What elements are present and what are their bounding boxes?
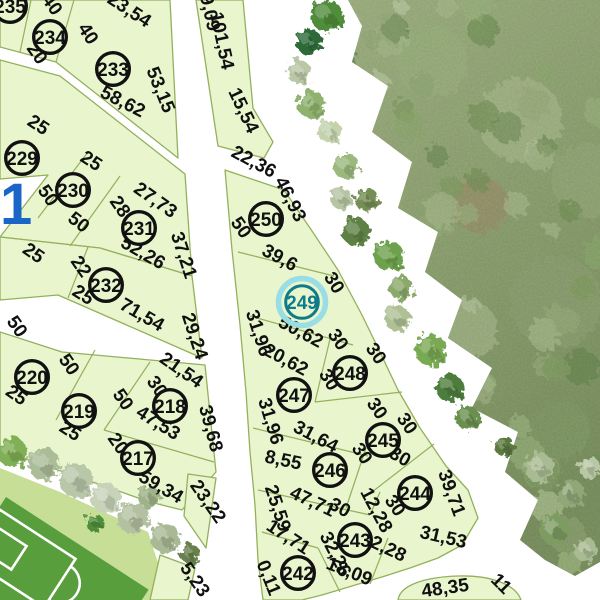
map-canvas: 404023,542053,1558,62252550502827,7337,2… — [0, 0, 600, 600]
parcel-number: 220 — [16, 368, 48, 389]
parcel-badge-219[interactable]: 219 — [63, 395, 96, 428]
tree-icon — [297, 90, 325, 118]
parcel-badge-247[interactable]: 247 — [278, 379, 311, 412]
tree-icon — [86, 514, 104, 532]
tree-icon — [28, 448, 60, 480]
tree-icon — [415, 334, 447, 366]
parcel-badge-244[interactable]: 244 — [399, 477, 432, 510]
parcel-badge-217[interactable]: 217 — [122, 442, 155, 475]
parcel-badge-249-selected[interactable]: 249 — [279, 279, 326, 326]
parcel-number: 250 — [250, 210, 282, 231]
tree-icon — [540, 515, 570, 545]
parcel-badge-220[interactable]: 220 — [16, 361, 49, 394]
parcel-badge-232[interactable]: 232 — [90, 269, 123, 302]
tree-icon — [579, 457, 600, 479]
tree-icon — [91, 483, 121, 513]
parcel-number: 233 — [97, 60, 129, 81]
tree-icon — [318, 120, 342, 144]
parcel-badge-234[interactable]: 234 — [34, 21, 67, 54]
parcel-badge-229[interactable]: 229 — [6, 142, 39, 175]
tree-icon — [436, 374, 464, 402]
parcel-number: 249 — [286, 293, 318, 314]
parcel-number: 232 — [90, 276, 122, 297]
parcel-badge-233[interactable]: 233 — [97, 53, 130, 86]
parcel-number: 234 — [34, 28, 66, 49]
parcel-number: 231 — [123, 219, 155, 240]
tree-icon — [333, 153, 359, 179]
tree-icon — [557, 480, 585, 508]
parcel-badge-243[interactable]: 243 — [339, 524, 372, 557]
tree-icon — [389, 276, 413, 300]
tree-icon — [456, 406, 480, 430]
parcel-number: 248 — [334, 364, 366, 385]
parcel-number: 246 — [314, 461, 346, 482]
block-number-label: 1 — [0, 172, 32, 237]
tree-icon — [494, 436, 514, 456]
parcel-badge-231[interactable]: 231 — [123, 212, 156, 245]
tree-icon — [574, 538, 598, 562]
tree-icon — [287, 60, 311, 84]
parcel-number: 230 — [57, 181, 89, 202]
tree-icon — [384, 305, 410, 331]
parcel-badge-230[interactable]: 230 — [57, 174, 90, 207]
parcel-number: 229 — [6, 149, 38, 170]
parcel-number: 247 — [278, 386, 310, 407]
tree-icon — [374, 241, 404, 271]
tree-icon — [330, 187, 352, 209]
parcel-number: 219 — [63, 402, 95, 423]
parcel-badge-242[interactable]: 242 — [282, 557, 315, 590]
cadastral-map: 404023,542053,1558,62252550502827,7337,2… — [0, 0, 600, 600]
parcel-number: 217 — [122, 449, 154, 470]
tree-icon — [355, 188, 379, 212]
tree-icon — [311, 0, 343, 32]
parcel-badge-246[interactable]: 246 — [314, 454, 347, 487]
tree-icon — [342, 218, 370, 246]
parcel-number: 218 — [154, 397, 186, 418]
parcel-badge-250[interactable]: 250 — [250, 203, 283, 236]
tree-icon — [525, 453, 555, 483]
parcel-number: 245 — [367, 431, 399, 452]
tree-icon — [296, 29, 322, 55]
tree-icon — [59, 463, 93, 497]
parcel-number: 244 — [399, 484, 431, 505]
tree-icon — [150, 523, 180, 553]
dimension-label: 48,35 — [420, 575, 470, 600]
parcel-number: 242 — [282, 564, 314, 585]
parcel-badge-248[interactable]: 248 — [334, 357, 367, 390]
parcel-number: 243 — [339, 531, 371, 552]
parcel-badge-235[interactable]: 235 — [0, 0, 26, 22]
parcel-badge-218[interactable]: 218 — [154, 390, 187, 423]
parcel-number: 235 — [0, 0, 26, 18]
parcel-badge-245[interactable]: 245 — [367, 424, 400, 457]
